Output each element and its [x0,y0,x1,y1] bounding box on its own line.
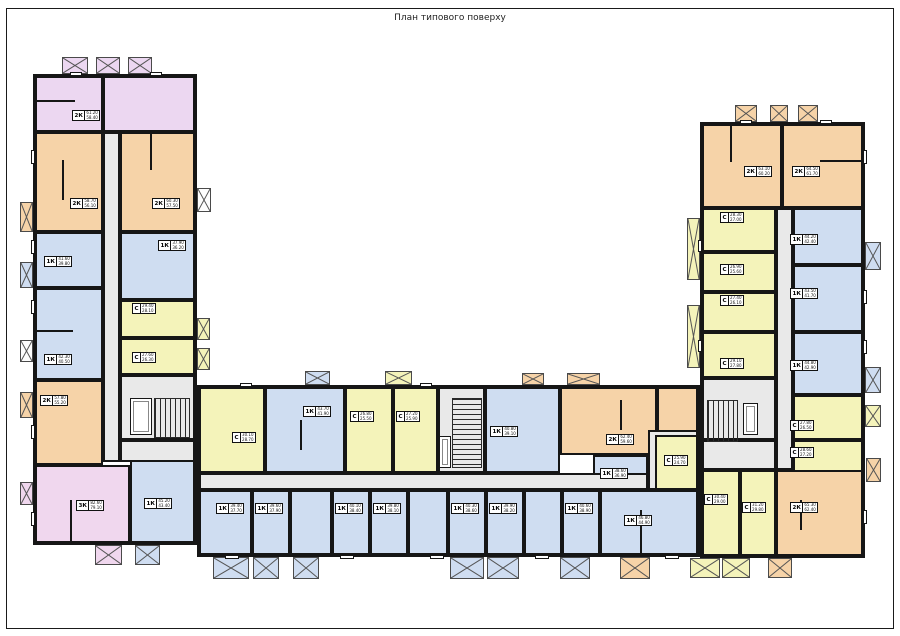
balcony-x-icon [254,558,278,578]
apt-label-D6: С29.1027.80 [720,358,744,369]
balcony [197,348,210,370]
apt-area-living: 37.90 [268,509,281,513]
apt-type: С [665,456,673,465]
apartment-1k-blue [33,288,103,380]
balcony-x-icon [96,546,121,564]
apt-area-living: 38.40 [348,509,361,513]
apt-type: 1К [490,504,502,513]
balcony-x-icon [21,483,32,504]
apartment-studio-yellow [197,385,265,473]
apt-area-living: 60.20 [757,172,770,176]
window [31,300,35,314]
balcony-x-icon [621,558,649,578]
lobby-left-wing [120,440,197,462]
apartment-1k-blue [562,490,600,557]
balcony-x-icon [688,306,699,367]
apartment-studio-yellow [393,385,438,473]
interior-wall [620,400,622,430]
interior-wall [820,160,865,162]
balcony-x-icon [21,263,32,287]
apt-type: С [721,296,729,305]
balcony-x-icon [386,372,411,384]
apt-label-C4: 1К39.8038.10 [373,503,401,514]
apt-area-living: 42.90 [803,366,816,370]
window [430,555,444,559]
apt-label-A5: 1К37.9036.20 [158,240,186,251]
apartment-1k-blue [197,490,252,557]
apt-area-living: 27.00 [729,218,742,222]
balcony-x-icon [866,243,880,269]
balcony [770,105,788,122]
balcony-x-icon [198,189,210,211]
staircase-right-wing [707,400,738,442]
balcony [487,557,519,579]
balcony-x-icon [488,558,518,578]
apt-type: 1К [256,504,268,513]
apt-type: С [791,448,799,457]
balcony [20,340,33,362]
apt-label-D7: 1К44.2042.40 [790,234,818,245]
apt-area-living: 38.20 [502,509,515,513]
interior-wall [150,132,152,170]
window [665,555,679,559]
elevator-shaft [439,436,451,468]
window [150,72,162,76]
apt-type: 1К [452,504,464,513]
corridor-bottom-bar [197,473,648,490]
apt-area-living: 55.20 [53,401,66,405]
apt-type: 1К [566,504,578,513]
balcony [305,371,330,385]
interior-wall [33,100,75,102]
staircase-center [452,398,482,468]
apt-area-living: 25.90 [405,417,418,421]
apt-label-D9: 1К44.8042.90 [790,360,818,371]
apt-area-living: 57.50 [165,204,178,208]
balcony [450,557,484,579]
apt-label-A3: 2К60.3057.50 [152,198,180,209]
apt-type: С [133,353,141,362]
balcony-x-icon [867,459,880,481]
apt-label-A9: 2К57.8055.20 [40,395,68,406]
balcony-x-icon [723,559,749,577]
apt-area-living: 40.50 [57,360,70,364]
apt-label-C3: 1К40.1038.40 [335,503,363,514]
window [863,340,867,354]
apartment-studio-yellow [740,470,776,558]
apt-label-B2: 1К43.7041.90 [303,406,331,417]
apt-type: С [233,433,241,442]
window [698,340,702,352]
apartment-1k-blue [486,490,524,557]
corridor-left-wing [103,132,120,462]
apt-type: 1К [791,289,803,298]
balcony [687,305,700,368]
lobby-right-wing [700,440,776,470]
window [225,555,239,559]
apt-area-living: 79.10 [89,506,102,510]
window [698,240,702,252]
balcony [620,557,650,579]
apt-area-living: 56.10 [83,204,96,208]
balcony [20,392,33,418]
apt-label-D15: 2К65.3062.40 [790,502,818,513]
interior-wall [62,160,64,200]
apt-label-B6: 2К62.4059.60 [606,434,634,445]
balcony [135,545,160,565]
apt-type: 1К [159,241,171,250]
balcony-x-icon [136,546,159,564]
window [863,510,867,524]
apt-area-living: 62.40 [803,508,816,512]
apartment-2k-peach [700,122,782,208]
balcony [95,545,122,565]
apt-label-D3: С28.3027.00 [720,212,744,223]
apt-type: 1К [217,504,229,513]
apt-type: 2К [41,396,53,405]
apt-area-living: 38.90 [578,509,591,513]
apartment-2k-peach [782,122,865,208]
apt-area-living: 43.40 [157,504,170,508]
apt-type: 2К [153,199,165,208]
balcony-x-icon [294,558,318,578]
apt-label-C2: 1К39.6037.90 [255,503,283,514]
balcony-x-icon [799,106,817,121]
apt-label-C8: 1К46.8044.90 [624,515,652,526]
apt-area-living: 26.50 [799,426,812,430]
balcony [866,458,881,482]
apartment-studio-yellow [700,470,740,558]
apt-area-living: 26.10 [729,301,742,305]
apt-label-D11: С28.6027.20 [790,447,814,458]
balcony [768,558,792,578]
balcony-x-icon [451,558,483,578]
apartment-1k-blue [408,490,448,557]
apt-label-A8: 1К42.3040.50 [44,354,72,365]
apt-type: 2К [73,111,85,120]
apt-area-living: 36.20 [171,246,184,250]
balcony-x-icon [21,393,32,417]
balcony-x-icon [771,106,787,121]
balcony [20,202,33,232]
apartment-1k-blue [370,490,408,557]
apt-area-living: 41.90 [316,412,329,416]
balcony [128,57,152,74]
apt-area-living: 28.10 [141,309,154,313]
apt-type: 3К [77,501,89,510]
balcony-x-icon [691,559,719,577]
apt-label-A10: 3К82.6079.10 [76,500,104,511]
apt-area-living: 24.70 [673,461,686,465]
apt-label-C6: 1К39.9038.20 [489,503,517,514]
apt-type: С [721,359,729,368]
apartment-1k-blue [448,490,486,557]
apt-label-C5: 1К40.3038.60 [451,503,479,514]
apt-area-living: 29.80 [751,508,764,512]
balcony [385,371,412,385]
apt-type: 1К [374,504,386,513]
apt-label-C1: 1К39.4037.70 [216,503,244,514]
apartment-1k-blue [252,490,290,557]
apt-type: С [351,412,359,421]
apt-label-D14: С31.2029.80 [742,502,766,513]
apt-type: 1К [625,516,637,525]
balcony-x-icon [198,349,209,369]
apt-area-living: 27.20 [799,453,812,457]
apt-type: 1К [601,469,613,478]
apt-area-living: 38.60 [464,509,477,513]
balcony-x-icon [866,368,880,392]
window [70,72,82,76]
apt-label-A6: С29.4028.10 [132,303,156,314]
balcony [722,558,750,578]
apt-label-A2: 2К58.7056.10 [70,198,98,209]
apt-label-D5: С27.4026.10 [720,295,744,306]
apt-type: 2К [793,167,805,176]
apartment-studio-yellow [700,332,776,378]
apt-area-living: 61.70 [805,172,818,176]
apt-label-D8: 1К43.5041.70 [790,288,818,299]
balcony [865,405,881,427]
apt-label-D4: С26.9025.60 [720,264,744,275]
apt-type: 1К [791,235,803,244]
apt-area-living: 41.70 [803,294,816,298]
balcony-x-icon [21,341,32,361]
balcony-x-icon [97,58,119,73]
apt-label-A1: 2К61.2058.40 [72,110,100,121]
apt-type: 1К [45,355,57,364]
apt-label-D12: С25.9024.70 [664,455,688,466]
balcony [522,373,544,385]
window [420,383,432,387]
interior-wall [730,122,732,162]
balcony [20,262,33,288]
apt-area-living: 59.60 [619,440,632,444]
apt-label-B3: С26.8025.50 [350,411,374,422]
balcony [213,557,249,579]
apt-type: С [133,304,141,313]
window [863,150,867,164]
balcony-x-icon [21,203,32,231]
window [740,120,752,124]
apt-area-living: 28.70 [241,438,254,442]
apartment-1k-blue [290,490,332,557]
apt-area-living: 42.40 [803,240,816,244]
apartment-2k-peach-annex [657,385,700,435]
balcony-x-icon [198,319,209,339]
staircase-left-wing [154,398,190,438]
apt-label-B5: 1К40.8039.10 [490,426,518,437]
apartment-2k-lavender [103,74,197,132]
apt-type: 2К [745,167,757,176]
apartment-2k-peach [33,380,103,465]
balcony-x-icon [866,406,880,426]
balcony-x-icon [561,558,589,578]
apt-type: 2К [791,503,803,512]
balcony [865,367,881,393]
apartment-studio-yellow [793,395,865,440]
apt-label-D1: 2К63.1060.20 [744,166,772,177]
window [340,555,354,559]
plan-title: План типового поверху [0,13,900,23]
window [31,512,35,526]
apt-area-living: 27.80 [729,364,742,368]
apt-label-B7: 1К38.6036.90 [600,468,628,479]
balcony-x-icon [129,58,151,73]
apartment-2k-lavender [33,74,103,132]
apt-type: 1К [491,427,503,436]
apt-area-living: 29.00 [713,500,726,504]
apt-label-A7: С27.6026.30 [132,352,156,363]
balcony-x-icon [769,559,791,577]
apt-type: С [721,213,729,222]
balcony-x-icon [736,106,756,121]
apartment-1k-blue [332,490,370,557]
apt-type: 1К [336,504,348,513]
balcony-x-icon [306,372,329,384]
apt-label-B1: С30.1028.70 [232,432,256,443]
elevator-shaft [743,403,758,435]
balcony [20,482,33,505]
balcony [197,188,211,212]
window [820,120,832,124]
apt-type: С [397,412,405,421]
apartment-1k-blue [524,490,562,557]
window [31,150,35,164]
apt-type: С [705,495,713,504]
apt-label-C7: 1К40.6038.90 [565,503,593,514]
window [535,555,549,559]
apt-type: С [721,265,729,274]
balcony [690,558,720,578]
apt-label-B4: С27.2025.90 [396,411,420,422]
apt-area-living: 25.60 [729,270,742,274]
apt-area-living: 36.90 [613,474,626,478]
apt-label-D10: С27.8026.50 [790,420,814,431]
balcony-x-icon [214,558,248,578]
apt-label-A4: 1К41.6039.80 [44,256,72,267]
apt-type: 2К [607,435,619,444]
elevator-shaft [130,398,152,435]
balcony [293,557,319,579]
window [240,383,252,387]
apt-area-living: 26.30 [141,358,154,362]
apt-type: 1К [304,407,316,416]
window [31,425,35,439]
apt-area-living: 39.80 [57,262,70,266]
apartment-1k-blue [265,385,345,473]
balcony [567,373,600,385]
interior-wall [300,420,302,450]
apartment-2k-peach [776,470,865,558]
interior-wall [70,500,72,545]
balcony [798,105,818,122]
apt-area-living: 58.40 [85,116,98,120]
apartment-2k-peach [120,132,197,232]
apt-type: 1К [45,257,57,266]
apt-type: 1К [791,361,803,370]
apt-area-living: 37.70 [229,509,242,513]
apartment-2k-peach [33,132,103,232]
balcony [560,557,590,579]
floor-plan-sheet: План типового поверху [0,0,900,636]
balcony [253,557,279,579]
balcony [96,57,120,74]
apt-type: 2К [71,199,83,208]
balcony-x-icon [523,374,543,384]
apt-type: 1К [145,499,157,508]
apt-area-living: 44.90 [637,521,650,525]
apt-area-living: 25.50 [359,417,372,421]
window [31,240,35,254]
interior-wall [33,330,73,332]
apt-label-A11: 1К45.2043.40 [144,498,172,509]
apt-area-living: 38.10 [386,509,399,513]
apt-area-living: 39.10 [503,432,516,436]
apt-type: С [743,503,751,512]
apt-label-D13: С30.4029.00 [704,494,728,505]
balcony-x-icon [63,58,87,73]
balcony [865,242,881,270]
window [863,290,867,304]
balcony-x-icon [568,374,599,384]
apt-label-D2: 2К64.5061.70 [792,166,820,177]
apartment-studio-yellow [345,385,393,473]
balcony [197,318,210,340]
apt-type: С [791,421,799,430]
